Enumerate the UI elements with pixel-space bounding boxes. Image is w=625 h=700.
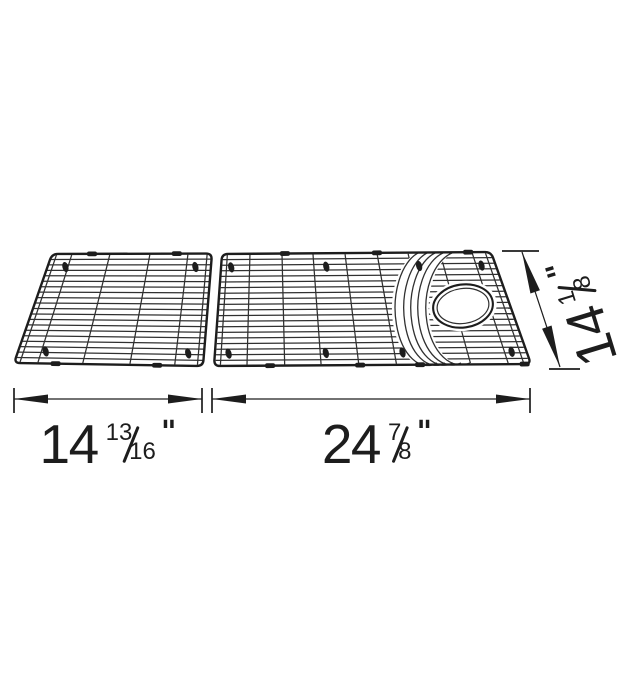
arrowhead-right — [168, 395, 202, 404]
diagram-canvas: 14 13 16 " 24 7 8 " 14 1 8 " — [0, 0, 625, 700]
frame-clip — [415, 362, 425, 367]
sink-grids-drawing — [0, 0, 625, 700]
dimension-whole-number: 14 — [563, 303, 618, 370]
mounting-foot — [191, 261, 199, 273]
arrowhead-top — [522, 252, 540, 293]
dimension-fraction: 7 8 — [388, 424, 412, 467]
right-sink-grid — [214, 250, 529, 368]
frame-clip — [152, 363, 162, 368]
dimension-fraction: 1 8 — [554, 272, 602, 307]
frame-clip — [265, 363, 275, 368]
dimension-right-grid-width — [212, 388, 530, 413]
frame-clip — [51, 361, 61, 366]
dimension-label-right-grid-width: 24 7 8 " — [322, 424, 430, 467]
frame-clip — [355, 363, 365, 368]
arrowhead-left — [212, 395, 246, 404]
mounting-foot — [61, 261, 69, 273]
frame-clip — [463, 250, 473, 255]
dimension-fraction: 13 16 — [106, 424, 156, 467]
frame-clip — [280, 251, 290, 256]
dimension-label-left-grid-width: 14 13 16 " — [39, 424, 174, 467]
fraction-denominator: 16 — [129, 443, 156, 461]
left-sink-grid — [15, 251, 211, 368]
dimension-left-grid-width — [14, 388, 202, 413]
dimension-whole-number: 14 — [39, 424, 97, 464]
frame-clip — [87, 251, 97, 256]
inch-mark: " — [417, 424, 431, 441]
frame-clip — [520, 362, 530, 367]
mounting-foot — [227, 262, 235, 274]
mounting-foot — [322, 261, 330, 273]
inch-mark: " — [161, 424, 175, 441]
arrowhead-right — [496, 395, 530, 404]
arrowhead-left — [14, 395, 48, 404]
mounting-foot — [477, 260, 485, 272]
frame-clip — [372, 250, 382, 255]
frame-clip — [172, 251, 182, 256]
dimension-whole-number: 24 — [322, 424, 380, 464]
